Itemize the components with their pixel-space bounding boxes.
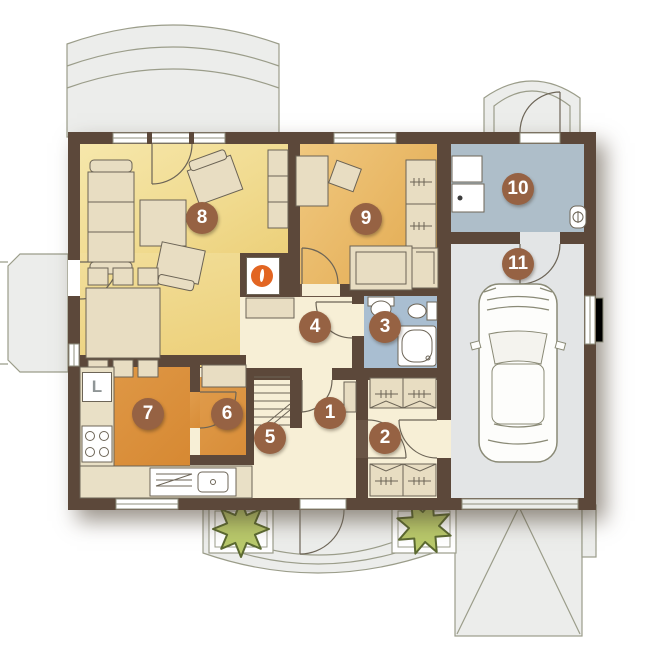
fireplace	[246, 257, 280, 295]
toilet-tank	[427, 302, 437, 320]
window-post	[147, 132, 152, 144]
window-post	[189, 132, 194, 144]
sofa	[88, 172, 134, 262]
appliance	[452, 156, 482, 182]
room-marker-11: 11	[502, 248, 534, 280]
toilet-bowl	[408, 304, 426, 318]
fireplace-icon	[251, 265, 273, 287]
door-terrace	[152, 144, 192, 184]
opening-back-door	[520, 133, 560, 143]
dining-chair	[138, 268, 158, 285]
bed	[350, 246, 412, 290]
door-closet-garage	[399, 420, 437, 458]
room-marker-6: 6	[211, 398, 243, 430]
room-marker-7: 7	[132, 398, 164, 430]
dining-chair	[138, 360, 158, 377]
shower	[398, 326, 436, 366]
room-marker-3: 3	[369, 311, 401, 343]
room-marker-2: 2	[369, 422, 401, 454]
door-front	[300, 510, 344, 554]
fridge: L	[82, 372, 112, 402]
car-icon	[470, 284, 565, 462]
dining-chair	[113, 268, 133, 285]
coffee-table	[140, 200, 186, 246]
desk	[296, 156, 328, 206]
hall-shelf	[344, 382, 356, 412]
opening-front-door	[300, 499, 346, 509]
room-marker-9: 9	[350, 203, 382, 235]
room-marker-5: 5	[254, 422, 286, 454]
pantry-cabinet	[202, 365, 246, 387]
stove	[82, 426, 112, 462]
sink-bowl	[198, 472, 228, 492]
dining-table	[86, 288, 160, 358]
door-bedroom	[302, 248, 338, 284]
dining-chair	[88, 268, 108, 285]
wall-shelf	[268, 150, 288, 228]
room-marker-10: 10	[502, 173, 534, 205]
room-marker-4: 4	[299, 311, 331, 343]
sofa-armrest	[90, 160, 132, 172]
room-marker-8: 8	[186, 202, 218, 234]
dining-chair	[113, 360, 133, 377]
washer	[452, 184, 484, 212]
desk-chair	[329, 160, 362, 191]
room-marker-1: 1	[314, 397, 346, 429]
floor-plan: L 1 2 3 4 5 6 7 8 9 10 11	[0, 0, 660, 660]
hall-cabinet	[246, 298, 294, 318]
door-utility-porch	[520, 92, 560, 132]
